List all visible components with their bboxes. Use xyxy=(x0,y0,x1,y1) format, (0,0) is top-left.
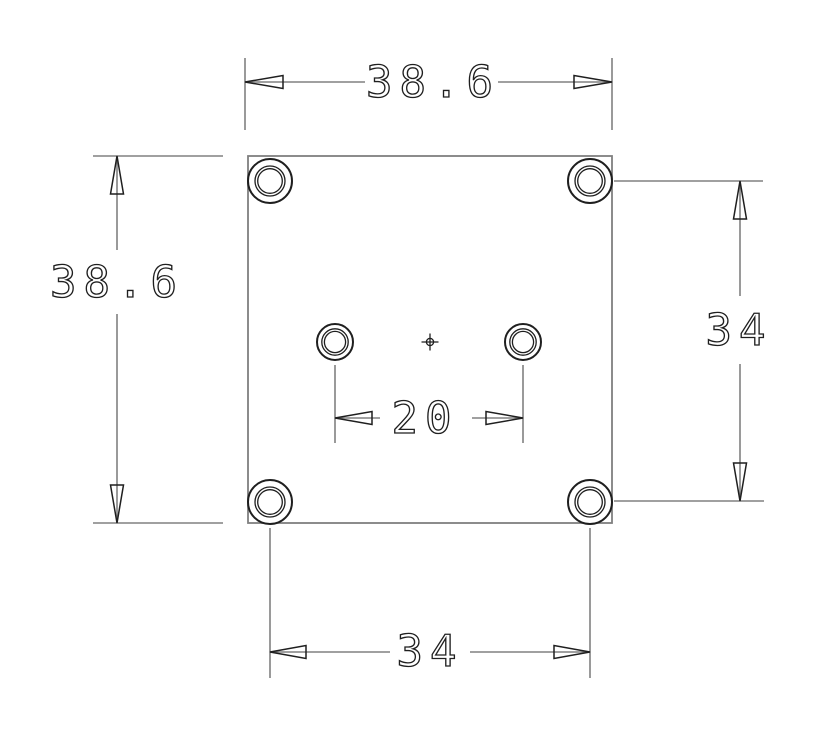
corner-hole-top-right xyxy=(568,159,612,203)
corner-hole-bottom-right xyxy=(568,480,612,524)
center-hole-right xyxy=(505,324,541,360)
corner-hole-top-left xyxy=(248,159,292,203)
dim-label-center-spacing: 20 xyxy=(391,397,458,441)
dim-label-top-width: 38.6 xyxy=(366,61,500,105)
corner-hole-bottom-left xyxy=(248,480,292,524)
dim-label-bottom-spacing: 34 xyxy=(396,630,463,674)
dim-label-right-spacing: 34 xyxy=(705,309,772,353)
cad-drawing-canvas: 38.6 38.6 34 20 34 xyxy=(0,0,830,741)
dim-label-left-height: 38.6 xyxy=(50,261,184,305)
center-hole-left xyxy=(317,324,353,360)
